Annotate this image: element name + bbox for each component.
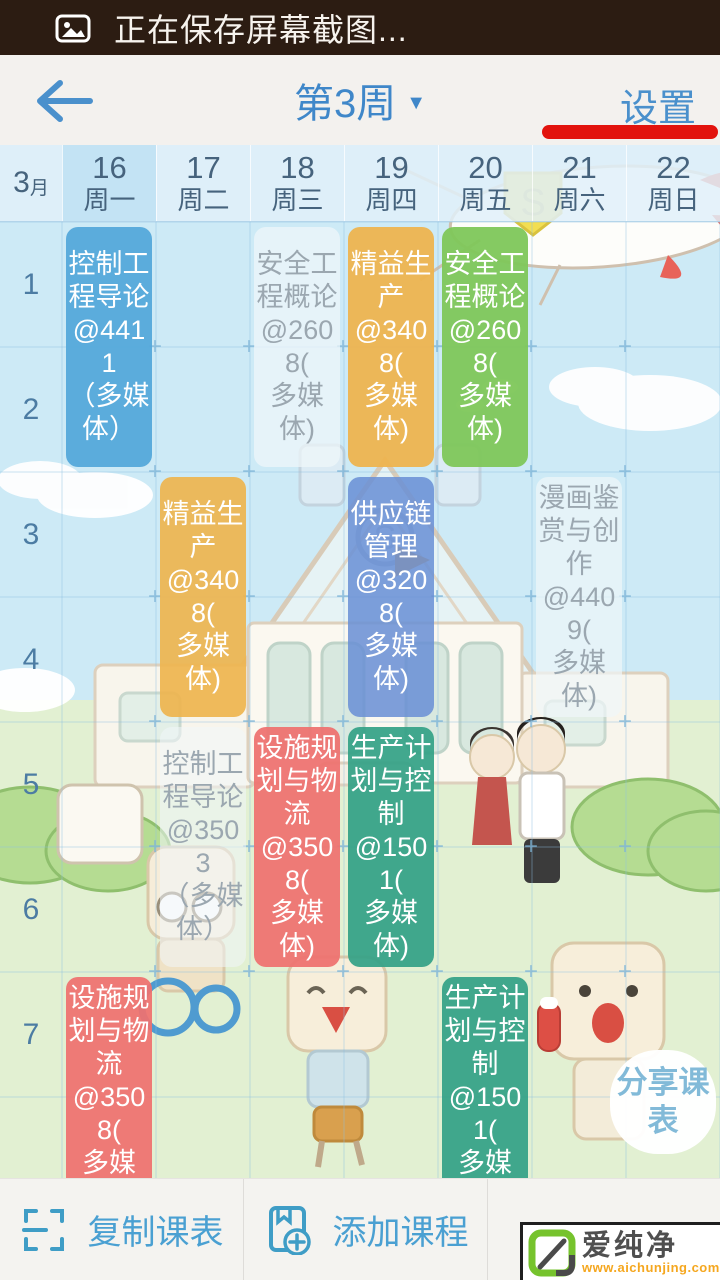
- course-block-设施规划与物流[interactable]: 设施规 划与物 流 @3508( 多媒体): [254, 727, 340, 967]
- course-block-生产计划与控制[interactable]: 生产计 划与控 制 @1501( 多媒体): [348, 727, 434, 967]
- month-label: 3 月: [0, 145, 62, 221]
- weekday-label: 周六: [553, 185, 605, 215]
- course-block-控制工程导论[interactable]: 控制工 程导论 @3503 （多媒 体）: [160, 727, 246, 967]
- weekday-label: 周三: [271, 185, 323, 215]
- add-course-label: 添加课程: [333, 1205, 469, 1254]
- weekday-label: 周五: [459, 185, 511, 215]
- watermark-badge: 爱纯净 www.aichunjing.com: [520, 1222, 720, 1280]
- course-block-供应链管理[interactable]: 供应链 管理 @3208( 多媒体): [348, 477, 434, 717]
- week-label: 第3周: [294, 71, 396, 129]
- watermark-text: 爱纯净 www.aichunjing.com: [582, 1231, 720, 1275]
- screenshot-image-icon: [54, 9, 92, 47]
- share-timetable-button[interactable]: 分享课表: [610, 1050, 716, 1154]
- weekday-label: 周一: [83, 185, 135, 215]
- period-label-7: 7: [0, 972, 62, 1097]
- timetable-area: S S: [0, 145, 720, 1178]
- day-header-cell-周六: 21周六: [532, 145, 626, 221]
- course-block-控制工程导论[interactable]: 控制工 程导论 @4411 （多媒 体）: [66, 227, 152, 467]
- day-header-cell-周一: 16周一: [62, 145, 156, 221]
- aichunjing-logo-icon: [528, 1229, 576, 1277]
- watermark-brand: 爱纯净: [582, 1231, 678, 1261]
- day-header-cell-周三: 18周三: [250, 145, 344, 221]
- date-number: 22: [656, 151, 690, 185]
- day-header-cell-周五: 20周五: [438, 145, 532, 221]
- course-block-生产计划与控制[interactable]: 生产计 划与控 制 @1501( 多媒体): [442, 977, 528, 1178]
- day-header-cell-周二: 17周二: [156, 145, 250, 221]
- date-number: 17: [186, 151, 220, 185]
- course-block-精益生产[interactable]: 精益生 产 @3408( 多媒体): [348, 227, 434, 467]
- add-course-book-icon: [263, 1205, 313, 1255]
- course-block-精益生产[interactable]: 精益生 产 @3408( 多媒体): [160, 477, 246, 717]
- course-block-设施规划与物流[interactable]: 设施规 划与物 流 @3508( 多媒体): [66, 977, 152, 1178]
- copy-frame-icon: [20, 1206, 68, 1254]
- app-screen: 正在保存屏幕截图... 第3周 ▼ 设置: [0, 0, 720, 1280]
- course-block-安全工程概论[interactable]: 安全工 程概论 @2608( 多媒体): [442, 227, 528, 467]
- nav-bar: 第3周 ▼ 设置: [0, 55, 720, 145]
- weekday-label: 周二: [177, 185, 229, 215]
- day-header-cell-周日: 22周日: [626, 145, 720, 221]
- copy-timetable-label: 复制课表: [88, 1205, 224, 1254]
- date-number: 16: [92, 151, 126, 185]
- copy-timetable-button[interactable]: 复制课表: [0, 1179, 243, 1280]
- period-label-5: 5: [0, 722, 62, 847]
- status-bar: 正在保存屏幕截图...: [0, 0, 720, 55]
- settings-underline-marker: [542, 125, 718, 139]
- day-header-row: 3 月 16周一17周二18周三19周四20周五21周六22周日: [0, 145, 720, 222]
- date-number: 18: [280, 151, 314, 185]
- status-text: 正在保存屏幕截图...: [114, 5, 408, 51]
- day-header-cell-周四: 19周四: [344, 145, 438, 221]
- caret-down-icon: ▼: [406, 92, 426, 115]
- course-block-漫画鉴赏与创作[interactable]: 漫画鉴 赏与创 作 @4409( 多媒体): [536, 477, 622, 717]
- period-label-4: 4: [0, 597, 62, 722]
- weekday-label: 周四: [365, 185, 417, 215]
- add-course-button[interactable]: 添加课程: [243, 1179, 487, 1280]
- course-block-安全工程概论[interactable]: 安全工 程概论 @2608( 多媒体): [254, 227, 340, 467]
- date-number: 21: [562, 151, 596, 185]
- period-label-6: 6: [0, 847, 62, 972]
- settings-button[interactable]: 设置: [620, 77, 696, 132]
- period-label-2: 2: [0, 347, 62, 472]
- date-number: 20: [468, 151, 502, 185]
- watermark-url: www.aichunjing.com: [582, 1261, 720, 1275]
- date-number: 19: [374, 151, 408, 185]
- period-label-3: 3: [0, 472, 62, 597]
- period-label-1: 1: [0, 222, 62, 347]
- weekday-label: 周日: [647, 185, 699, 215]
